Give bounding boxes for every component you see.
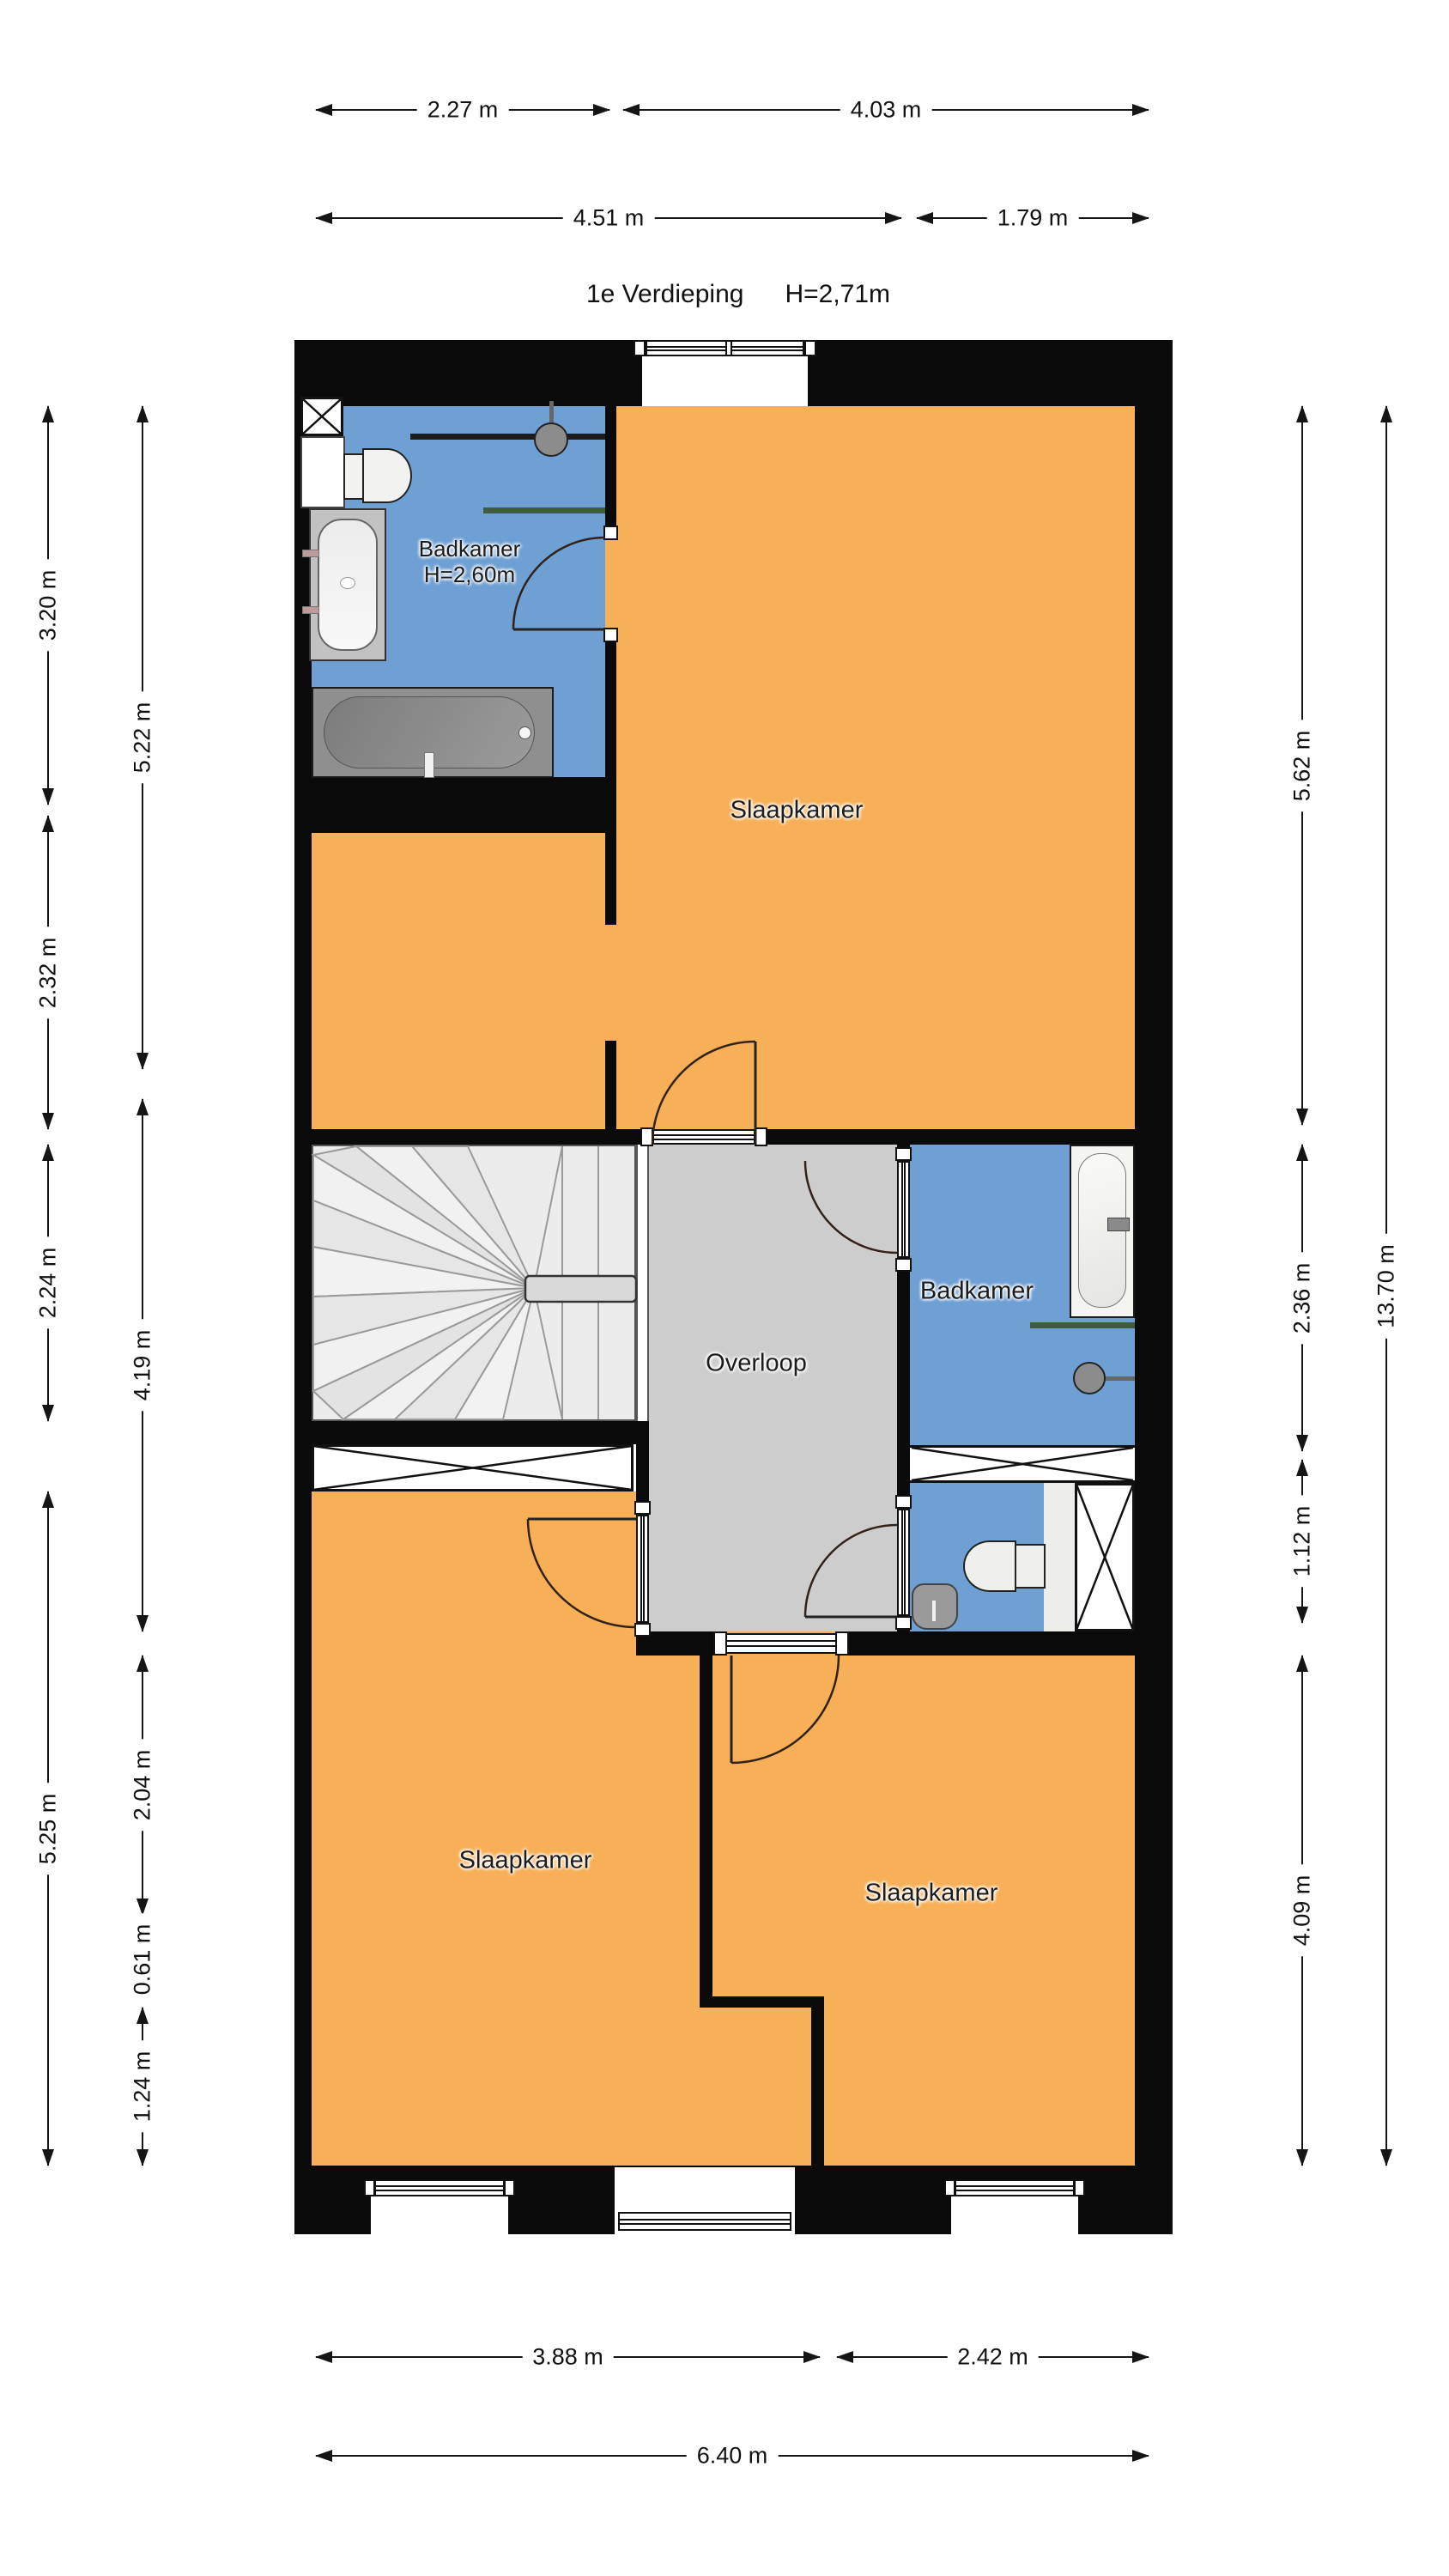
window-jamb (804, 340, 816, 356)
dimension: 1.24 m (142, 2008, 143, 2166)
window-icon-bc (618, 2212, 791, 2231)
door-leaf-toilet (897, 1509, 910, 1616)
wall-bedroom-divider-a (700, 1656, 712, 2008)
door-jamb (634, 1623, 651, 1637)
dimension: 1.79 m (917, 217, 1149, 219)
dimension: 3.20 m (47, 406, 49, 805)
wall-stub-a (605, 833, 616, 925)
floorplan-canvas: 1e Verdieping H=2,71m (0, 0, 1449, 2576)
door-jamb (895, 1147, 912, 1161)
sink-drain-icon (340, 577, 355, 589)
door-threshold-bedroom-right (725, 1633, 837, 1654)
faucet-icon (302, 550, 319, 557)
duct-x-icon (300, 397, 343, 436)
shower-glass (483, 507, 605, 513)
window-recess-bl (371, 2194, 508, 2234)
room-label-overloop: Overloop (706, 1350, 807, 1378)
door-threshold-top-bedroom (652, 1129, 755, 1145)
wall-overloop-bottom-b (837, 1631, 1135, 1656)
partition-wall (410, 434, 605, 440)
wall-bedroom-divider-jog (700, 1996, 824, 2008)
dimension: 4.09 m (1301, 1656, 1303, 2166)
room-overloop (649, 1145, 897, 1631)
plan-title: 1e Verdieping H=2,71m (481, 280, 996, 309)
cabinet (300, 436, 345, 508)
window-icon-br (955, 2179, 1075, 2196)
dimension: 6.40 m (316, 2455, 1149, 2457)
wall-bedroom-divider-b (811, 2008, 824, 2166)
door-jamb (603, 526, 618, 540)
void-x-icon (312, 1444, 634, 1492)
wall-right (1135, 340, 1173, 2234)
wall-divider-mid-b (897, 1258, 910, 1509)
toilet2-bowl-icon (963, 1540, 1016, 1592)
dimension: 0.61 m (142, 1922, 143, 1996)
shower-head-icon (534, 422, 568, 457)
dimension: 3.88 m (316, 2356, 820, 2358)
door-jamb (640, 1127, 653, 1146)
sink2-tap-icon (932, 1601, 936, 1621)
bathtub-drain (424, 752, 434, 778)
room-label-badkamer-mid: Badkamer (920, 1278, 1034, 1306)
wall-void-band (294, 1421, 649, 1444)
window-icon-top (646, 340, 804, 356)
door-jamb (895, 1258, 912, 1272)
room-label-slaapkamer-left: Slaapkamer (459, 1847, 592, 1875)
wall-stub-b (605, 1041, 616, 1129)
room-label-slaapkamer-top: Slaapkamer (731, 797, 864, 825)
dimension: 5.22 m (142, 406, 143, 1069)
dimension: 4.03 m (623, 109, 1149, 111)
wall-badkamer-top-bottom (294, 777, 616, 833)
wall-mid-b (755, 1129, 1135, 1145)
door-jamb (835, 1631, 849, 1656)
door-jamb (895, 1616, 912, 1630)
duct-x3-icon (1075, 1483, 1135, 1631)
door-jamb (895, 1495, 912, 1509)
shower-arm2-icon (1102, 1376, 1135, 1381)
window-recess-top (642, 354, 808, 406)
dimension: 2.27 m (316, 109, 609, 111)
window-jamb (364, 2179, 375, 2196)
dimension: 2.32 m (47, 816, 49, 1129)
window-recess-br (951, 2194, 1078, 2234)
toilet2-tank-icon (1013, 1544, 1046, 1589)
faucet-icon (302, 606, 319, 614)
room-label-badkamer-top: Badkamer H=2,60m (419, 536, 521, 587)
stairs-area (312, 1145, 636, 1421)
door-jamb (713, 1631, 727, 1656)
dimension: 1.12 m (1301, 1460, 1303, 1623)
floor-name: 1e Verdieping (586, 280, 744, 309)
toilet-cabinet (1044, 1483, 1075, 1631)
door-jamb (603, 628, 618, 642)
bathtub-faucet-icon (518, 726, 531, 739)
ceiling-height: H=2,71m (785, 280, 890, 309)
window-jamb (634, 340, 646, 356)
dimension: 4.51 m (316, 217, 901, 219)
wall-mid-a (294, 1129, 652, 1145)
room-label-slaapkamer-right: Slaapkamer (865, 1880, 998, 1908)
window-icon-bl (374, 2179, 505, 2196)
door-jamb (634, 1501, 651, 1515)
duct-x2-icon (910, 1445, 1135, 1483)
bathtub2-faucet-icon (1107, 1218, 1130, 1231)
dimension: 2.42 m (837, 2356, 1149, 2358)
door-jamb (755, 1127, 767, 1146)
dimension: 2.24 m (47, 1145, 49, 1421)
shower-glass2 (1030, 1322, 1135, 1328)
dimension: 5.25 m (47, 1492, 49, 2166)
window-jamb (504, 2179, 515, 2196)
window-jamb (1074, 2179, 1085, 2196)
dimension: 2.36 m (1301, 1145, 1303, 1451)
toilet-bowl-icon (362, 448, 412, 503)
dimension: 5.62 m (1301, 406, 1303, 1125)
dimension: 4.19 m (142, 1099, 143, 1631)
stairs-balustrade (636, 1145, 649, 1421)
shower-head2-icon (1073, 1362, 1106, 1394)
door-threshold-bedroom-left (636, 1515, 649, 1623)
window-jamb (944, 2179, 955, 2196)
wall-badkamer-top-right-a (605, 399, 616, 539)
dimension: 13.70 m (1385, 406, 1387, 2166)
dimension: 2.04 m (142, 1656, 143, 1915)
door-leaf-badkamer-mid (897, 1161, 910, 1258)
